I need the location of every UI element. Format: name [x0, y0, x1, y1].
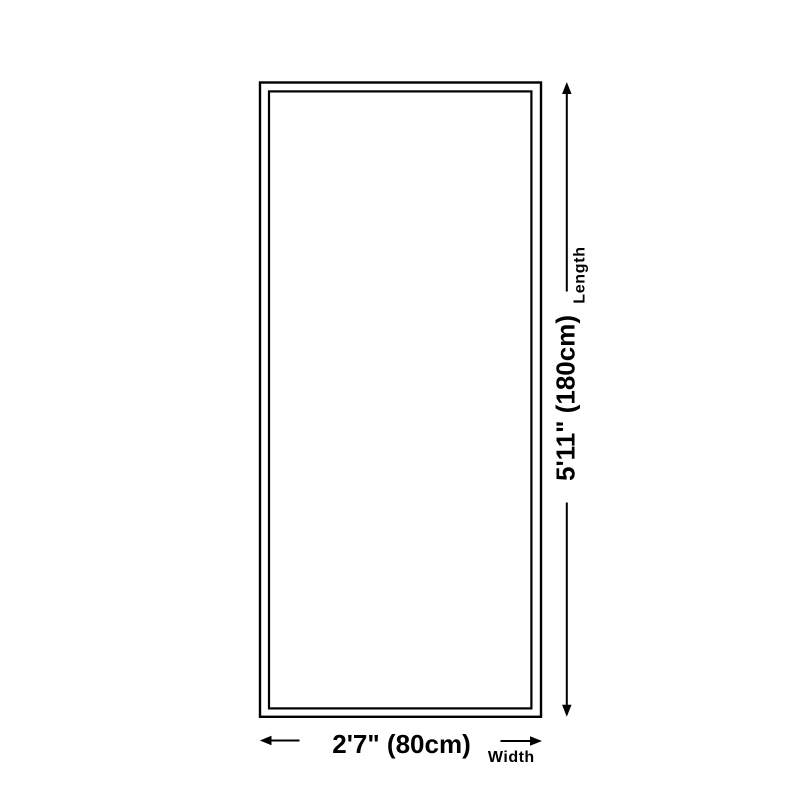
svg-text:Width: Width: [488, 749, 535, 766]
svg-text:5'11" (180cm): 5'11" (180cm): [551, 315, 581, 481]
svg-text:2'7" (80cm): 2'7" (80cm): [332, 729, 470, 759]
svg-text:Length: Length: [572, 246, 589, 304]
